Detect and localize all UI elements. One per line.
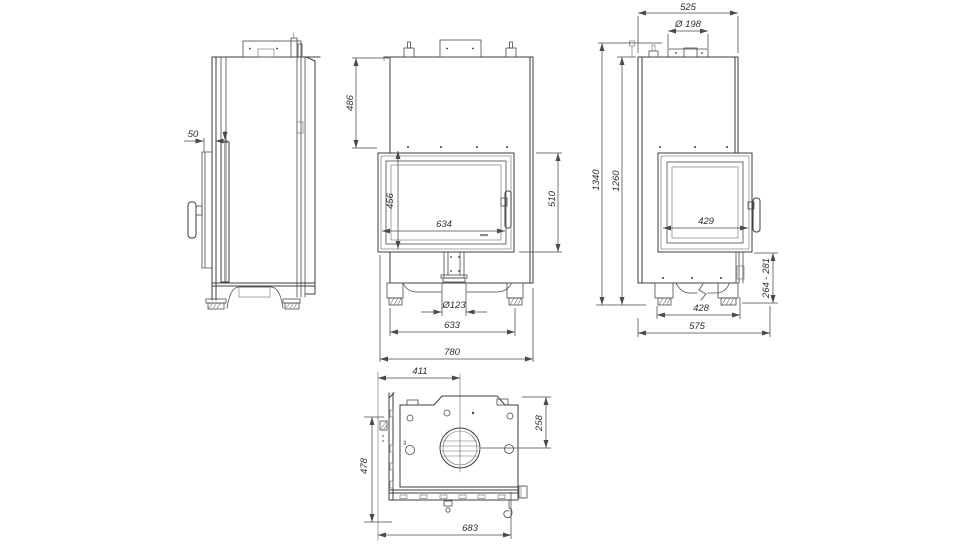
dim-label-1340: 1340 [591,169,602,191]
dim-label-264-281: 264 - 281 [761,258,772,299]
side-view-top-bracket [243,33,302,57]
dim-front-glass-width: 634 [382,219,505,231]
side-view-door-handle [188,202,202,238]
dim-right-side-glass-width: 429 [663,216,748,228]
dim-front-door-height: 510 [519,153,562,252]
top-view: 411 258 478 683 [359,366,551,540]
dim-label-429: 429 [698,216,715,227]
dim-label-525: 525 [680,2,697,13]
dim-label-411: 411 [412,366,427,377]
dim-top-body-depth: 478 [359,417,392,522]
dim-right-flue-diameter: Ø 198 [668,19,708,48]
dim-right-feet-spacing: 428 [657,297,740,319]
side-view-body [212,57,320,300]
dim-right-plinth-height: 264 - 281 [742,253,778,303]
dim-right-overall-height: 1340 [591,43,662,305]
dim-label-456: 456 [385,192,396,209]
dim-right-body-height: 1260 [611,57,636,305]
dim-top-flue-from-left: 411 [378,366,460,540]
dim-label-633: 633 [444,320,461,331]
front-view: 486 456 634 510 Ø123 633 78 [345,40,562,362]
dim-label-258: 258 [534,414,545,432]
dim-label-575: 575 [689,321,706,332]
dim-front-glass-height: 456 [385,151,398,249]
dim-label-198: Ø 198 [674,19,702,30]
right-side-view: 525 Ø 198 1340 1260 429 264 - 281 [591,2,778,337]
front-view-door-glass [378,153,514,252]
glass-logo-mark [480,234,488,236]
dim-top-overall-width: 683 [378,492,511,539]
dim-label-510: 510 [547,190,558,207]
side-view-base [206,283,315,309]
dim-front-hood-height: 486 [345,58,389,148]
right-view-base [638,283,738,305]
right-view-door-glass [658,153,760,252]
top-view-flue-opening [440,374,480,472]
top-view-body [380,393,518,500]
drawing-svg: 50 [0,0,970,546]
dim-label-634: 634 [436,219,452,230]
dim-label-683: 683 [462,523,479,534]
dim-label-486: 486 [345,94,356,111]
dim-label-478: 478 [359,457,370,474]
dim-front-feet-spacing: 633 [390,308,515,336]
dim-label-780: 780 [444,347,461,358]
side-view: 50 [184,33,320,309]
dim-label-1260: 1260 [611,170,622,192]
top-view-front-rail [390,486,527,518]
dim-label-428: 428 [693,303,710,314]
dim-label-123: Ø123 [441,300,466,311]
dim-front-inlet-diameter: Ø123 [421,283,487,316]
front-view-base [387,252,533,305]
dim-label-50: 50 [188,129,199,140]
technical-drawing-canvas: 50 [0,0,970,546]
front-view-body [384,40,533,283]
